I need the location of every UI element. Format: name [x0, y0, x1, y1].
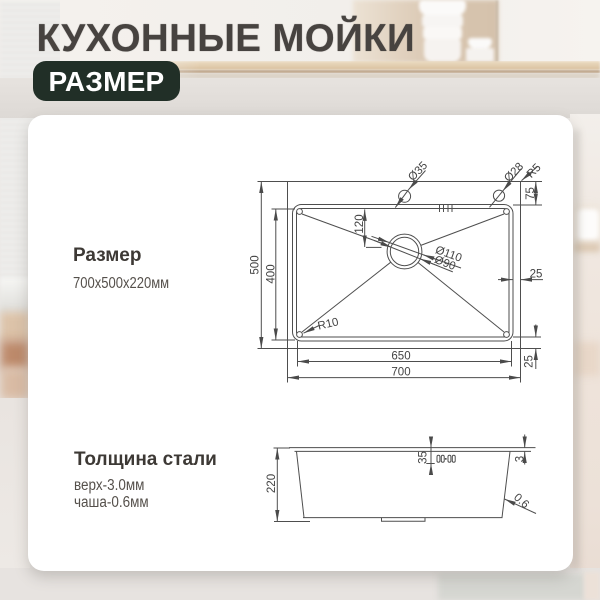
svg-text:400: 400: [265, 264, 277, 283]
svg-text:650: 650: [391, 350, 410, 362]
svg-text:0.6: 0.6: [511, 492, 531, 512]
svg-text:120: 120: [354, 214, 366, 233]
svg-text:220: 220: [266, 474, 278, 493]
svg-text:Ø35: Ø35: [406, 160, 430, 184]
svg-text:75: 75: [525, 187, 537, 200]
svg-text:25: 25: [530, 268, 543, 280]
svg-text:25: 25: [524, 355, 536, 368]
svg-text:R10: R10: [317, 316, 340, 332]
svg-text:700: 700: [391, 367, 410, 379]
svg-text:35: 35: [417, 451, 429, 464]
svg-text:500: 500: [249, 255, 261, 274]
svg-text:R5: R5: [525, 162, 544, 181]
svg-text:3: 3: [515, 456, 527, 462]
